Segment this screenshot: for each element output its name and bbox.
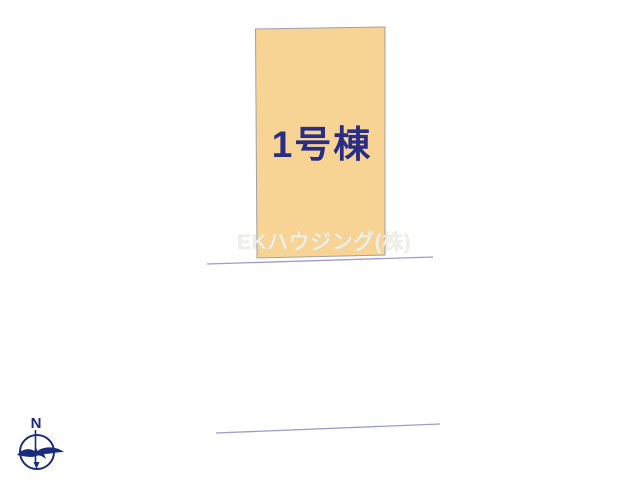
compass-north-label: N bbox=[31, 415, 42, 432]
road-line-upper bbox=[207, 257, 433, 264]
road-line-lower bbox=[216, 424, 440, 433]
company-watermark: EKハウジング(株) bbox=[237, 226, 411, 256]
compass-north-icon: N bbox=[8, 412, 72, 480]
site-plan-canvas: 1号棟 EKハウジング(株) N bbox=[0, 0, 640, 480]
compass-bird-shape bbox=[17, 446, 64, 459]
lot-1-label: 1号棟 bbox=[255, 27, 385, 255]
